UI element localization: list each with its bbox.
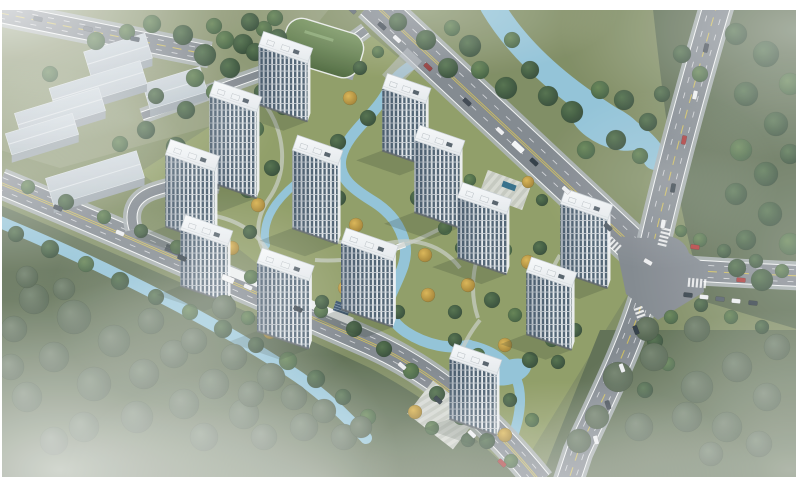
- fog-haze-layer: [0, 0, 800, 485]
- aerial-masterplan-rendering: aerial-masterplan-rendering-residential-…: [0, 0, 800, 485]
- masterplan-svg: [0, 0, 800, 485]
